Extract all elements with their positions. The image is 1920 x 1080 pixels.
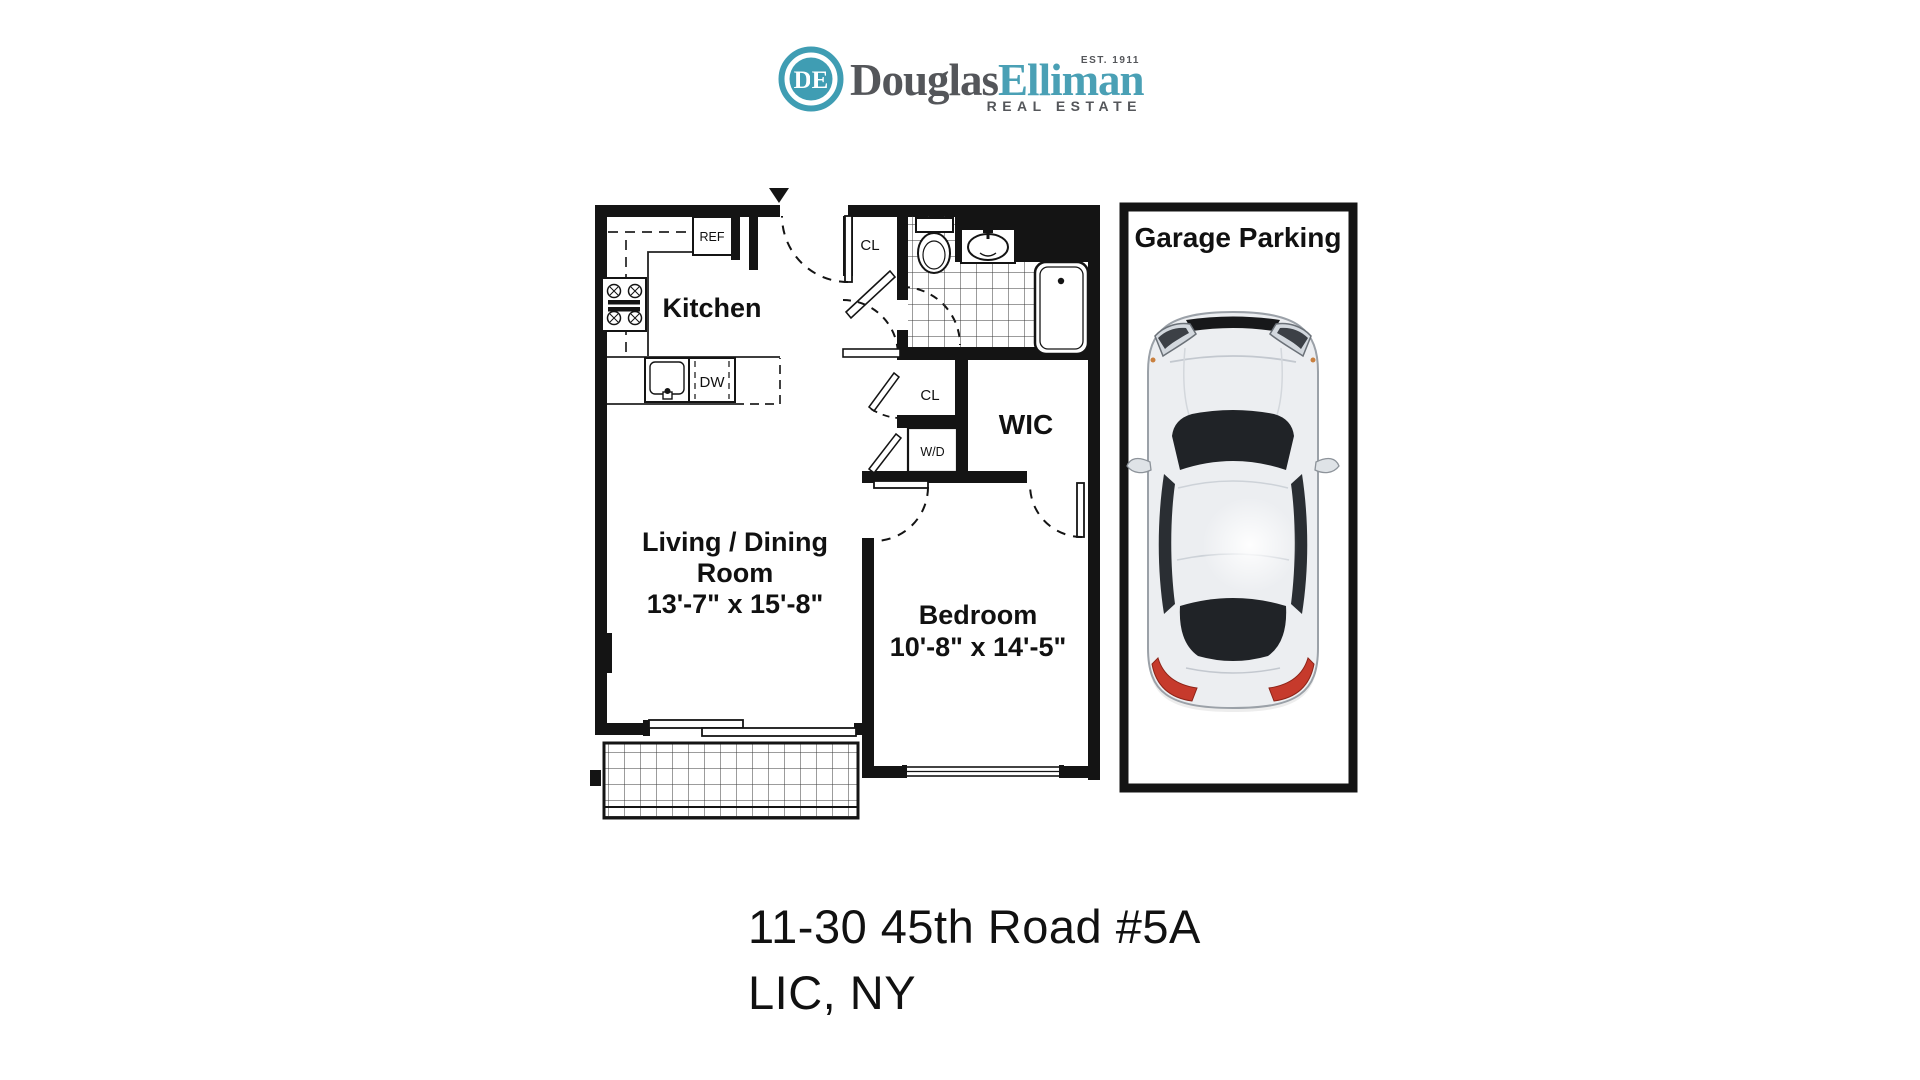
garage-label: Garage Parking	[1135, 222, 1342, 253]
washer-dryer: W/D	[908, 428, 957, 472]
bathtub-icon	[1035, 262, 1088, 354]
closet-top-door-leaf	[846, 271, 895, 318]
toilet-icon	[916, 218, 953, 273]
stove-icon	[602, 278, 646, 331]
car-windshield	[1172, 410, 1294, 470]
floorplan: REF DW Kitchen	[560, 150, 1400, 840]
entry-marker-icon	[769, 188, 789, 203]
property-address: 11-30 45th Road #5A LIC, NY	[748, 894, 1201, 1026]
address-line2: LIC, NY	[748, 960, 1201, 1026]
garage: Garage Parking	[1124, 207, 1353, 788]
bathroom-tile-floor-2	[955, 262, 1035, 347]
bedroom-label: Bedroom	[919, 600, 1038, 630]
wic-door-leaf	[1077, 483, 1084, 537]
address-line1: 11-30 45th Road #5A	[748, 894, 1201, 960]
closet-mid-door-leaf	[869, 373, 899, 411]
bathroom-sink-icon	[961, 229, 1015, 263]
living-label-line1: Living / Dining	[642, 527, 828, 557]
entry-door-arc	[782, 216, 848, 282]
brand-established: EST. 1911	[1081, 55, 1140, 66]
living-label-line2: Room	[697, 558, 774, 588]
wd-door-leaf	[869, 434, 901, 473]
living-dims-label: 13'-7" x 15'-8"	[647, 589, 824, 619]
entry-door-leaf	[845, 216, 852, 282]
balcony	[604, 743, 858, 818]
bedroom-window	[902, 765, 1064, 778]
closet-mid-label: CL	[920, 387, 939, 404]
living-dining-room: Living / Dining Room 13'-7" x 15'-8"	[642, 527, 856, 736]
dishwasher: DW	[689, 358, 735, 402]
bedroom-door-arc	[874, 487, 928, 541]
kitchen-counter-dash-end	[735, 358, 780, 404]
bedroom-door-leaf	[874, 481, 928, 488]
bathroom	[908, 216, 1088, 354]
hall-header	[843, 349, 900, 357]
wd-label: W/D	[920, 445, 944, 459]
wic-door-arc	[1030, 485, 1082, 537]
car-rear-window	[1180, 598, 1286, 661]
bedroom-dims-label: 10'-8" x 14'-5"	[890, 632, 1067, 662]
car-roof-glare	[1202, 497, 1298, 593]
closet-mid-door-arc	[871, 409, 898, 418]
refrigerator: REF	[693, 217, 732, 255]
wic-label: WIC	[999, 409, 1053, 440]
dw-label: DW	[700, 374, 726, 391]
sliding-door	[649, 720, 856, 736]
bedroom: Bedroom 10'-8" x 14'-5"	[890, 600, 1067, 778]
brand-logo: DE DouglasElliman EST. 1911 REAL ESTATE	[778, 44, 1142, 116]
brand-division: REAL ESTATE	[987, 98, 1142, 114]
car-icon	[1127, 312, 1339, 712]
closet-top-label: CL	[860, 237, 879, 254]
kitchen-sink-icon	[645, 358, 689, 402]
brand-name-douglas: Douglas	[850, 55, 998, 105]
brand-monogram-icon: DE	[778, 46, 844, 112]
kitchen-label: Kitchen	[662, 293, 761, 323]
ref-label: REF	[700, 230, 725, 244]
